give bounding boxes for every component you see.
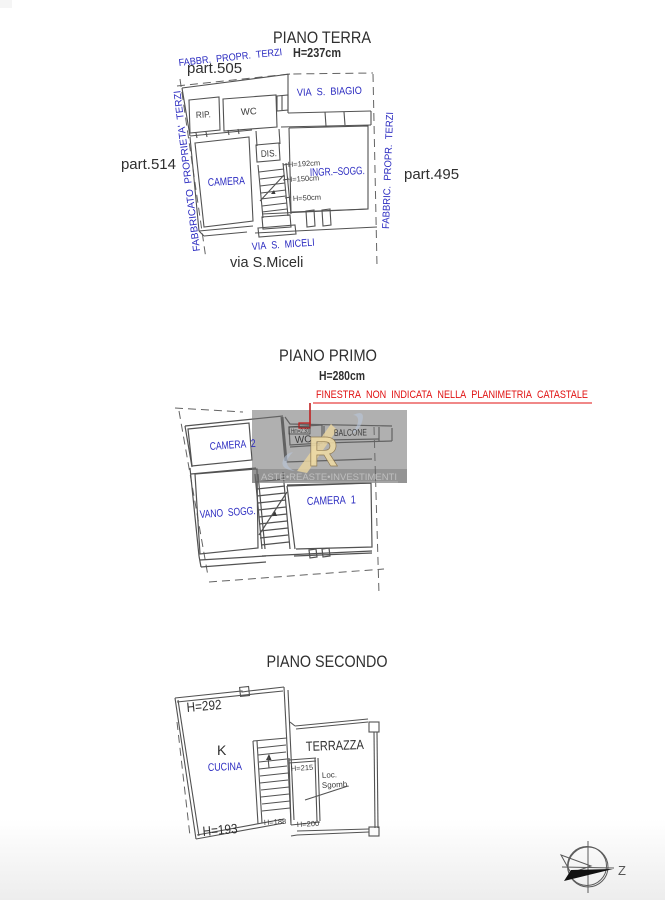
svg-text:H=188: H=188: [264, 817, 287, 827]
svg-text:CAMERA: CAMERA: [208, 175, 246, 189]
svg-text:DIS.: DIS.: [261, 148, 278, 160]
svg-text:part.495: part.495: [404, 166, 459, 183]
svg-text:H=193: H=193: [202, 821, 238, 839]
svg-text:VIA S. BIAGIO: VIA S. BIAGIO: [297, 85, 362, 99]
svg-text:PIANO SECONDO: PIANO SECONDO: [267, 652, 388, 671]
svg-text:K: K: [217, 742, 227, 758]
svg-text:ASTE•REASTE•INVESTIMENTI: ASTE•REASTE•INVESTIMENTI: [261, 472, 397, 482]
svg-text:H=192cm: H=192cm: [288, 158, 321, 169]
svg-text:Sgomb.: Sgomb.: [322, 780, 350, 790]
svg-text:H=280cm: H=280cm: [319, 368, 365, 383]
svg-text:WC: WC: [241, 106, 258, 118]
svg-text:RIP.: RIP.: [196, 109, 212, 120]
svg-text:via S.Miceli: via S.Miceli: [230, 255, 303, 271]
svg-text:WC: WC: [295, 434, 312, 446]
svg-text:Loc.: Loc.: [322, 770, 338, 780]
svg-text:CAMERA 2: CAMERA 2: [209, 438, 256, 453]
svg-text:H=200: H=200: [297, 819, 320, 829]
svg-text:VIA S. MICELI: VIA S. MICELI: [251, 237, 315, 253]
svg-text:CAMERA 1: CAMERA 1: [307, 494, 356, 508]
svg-text:FABBRIC. PROPR. TERZI: FABBRIC. PROPR. TERZI: [381, 112, 396, 229]
svg-text:TERRAZZA: TERRAZZA: [306, 737, 364, 754]
svg-text:PIANO PRIMO: PIANO PRIMO: [279, 346, 377, 365]
svg-text:FINESTRA NON INDICATA NELLA: FINESTRA NON INDICATA NELLA PLANIMETRIA …: [316, 389, 588, 401]
svg-text:Hm=2.30: Hm=2.30: [291, 428, 309, 435]
svg-text:Z: Z: [618, 863, 626, 878]
svg-text:VANO SOGG.: VANO SOGG.: [199, 505, 256, 521]
svg-text:part.514: part.514: [121, 156, 176, 173]
svg-text:H=292: H=292: [186, 697, 222, 715]
svg-text:H=50cm: H=50cm: [293, 193, 322, 203]
svg-text:H=215: H=215: [291, 763, 314, 773]
svg-text:CUCINA: CUCINA: [208, 761, 243, 774]
svg-text:H=150cm: H=150cm: [287, 173, 320, 184]
svg-text:BALCONE: BALCONE: [334, 427, 367, 439]
svg-text:H=237cm: H=237cm: [293, 45, 341, 60]
